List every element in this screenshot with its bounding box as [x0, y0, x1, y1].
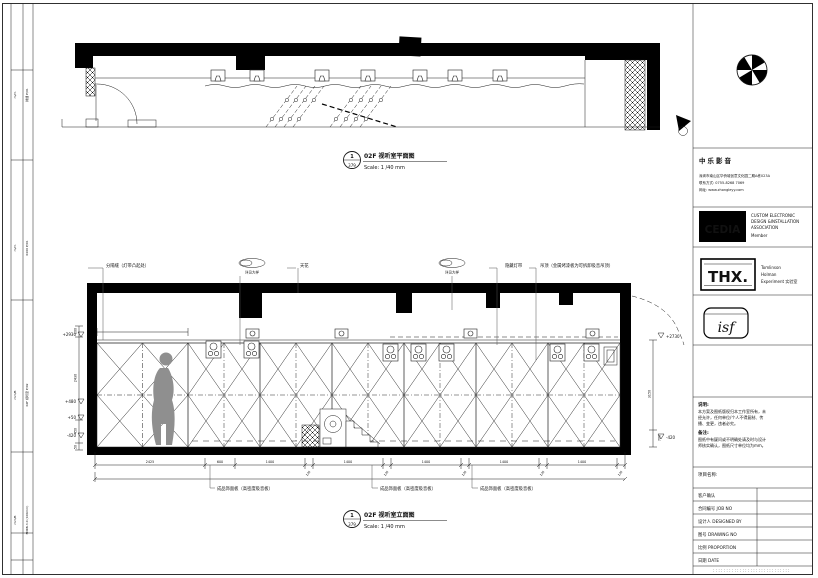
elevation-callouts: 分隔缝（灯带凸起处） 详见大样 天花 详见大样 隐藏灯带 吊顶（金属烤漆板为可拆… [88, 259, 613, 361]
console-and-steps [302, 347, 617, 447]
company-info: 中乐影音 深圳市南山区华侨城创意文化园二期A栋023A 联系方式: 0755-8… [699, 156, 771, 192]
margin-label: 排烟 P/01 [24, 88, 29, 102]
table-row-label: 日期 DATE [698, 558, 719, 564]
detail-number: 1 [350, 513, 354, 519]
callout-label: 成品饰面板（高密度吸音板） [380, 485, 436, 492]
downlight-icon [464, 329, 477, 338]
isf-logo-text: isf [718, 320, 738, 336]
dim-value: 1400 [266, 460, 274, 464]
company-address: 深圳市南山区华侨城创意文化园二期A栋023A [699, 173, 771, 178]
footer-marks: ::::::::::::::::::::::::::::: [713, 569, 791, 573]
notes-line: 经允许，任何单位/个人不得复制、传 [698, 414, 763, 420]
elevation-column [559, 293, 573, 305]
plan-section-line [322, 104, 397, 127]
dim-value: 1400 [344, 460, 352, 464]
isf-block: isf [704, 308, 748, 338]
speaker-icon [383, 344, 398, 361]
plan-cable-runs [266, 86, 391, 127]
remark-line: 师核实确认，图纸尺寸单位均为mm。 [698, 442, 766, 448]
plan-wall-band [75, 43, 660, 56]
cedia-line: DESIGN &INSTALLATION [751, 219, 799, 224]
cedia-line: CUSTOM ELECTRONIC [751, 213, 795, 218]
margin-label: m/m [13, 244, 17, 251]
left-facet-panel [97, 328, 188, 447]
thx-line: Experiment 实验室 [761, 278, 797, 284]
dim-value: 1400 [500, 460, 508, 464]
plan-drawing: 1 379 02F 视听室平面图 Scale: 1 /40 mm [62, 36, 691, 171]
margin-label: 02F 视听室 P/02 [24, 383, 29, 406]
callout-label: 隐藏灯带 [505, 262, 523, 269]
elevation-scale: Scale: 1 /40 mm [364, 524, 405, 530]
door-swing [86, 83, 156, 127]
speaker-icon [550, 344, 565, 361]
plan-column [398, 36, 421, 56]
dim-value: 120 [539, 470, 546, 477]
notes-title: 说明: [698, 401, 709, 408]
plan-title: 02F 视听室平面图 [364, 152, 415, 160]
plan-hatched-pier [86, 68, 95, 96]
plan-title-block: 1 379 02F 视听室平面图 Scale: 1 /40 mm [344, 152, 448, 172]
plan-column [236, 43, 265, 70]
dim-value: 2425 [146, 460, 154, 464]
title-block: 中乐影音 深圳市南山区华侨城创意文化园二期A栋023A 联系方式: 0755-8… [693, 55, 812, 573]
speaker-icon [493, 70, 507, 81]
speaker-icon [361, 70, 375, 81]
notes-line: 本方案及图纸版权归本工作室所有，未 [698, 408, 766, 414]
dim-value: 1400 [578, 460, 586, 464]
cad-canvas: m/m 排烟 P/01 m/m 0400 P/01 mm/B 02F 视听室 P… [0, 0, 818, 578]
speaker-icon [584, 344, 599, 361]
left-margin-labels: m/m 排烟 P/01 m/m 0400 P/01 mm/B 02F 视听室 P… [13, 88, 29, 534]
dim-value: 100 [74, 328, 78, 334]
plan-hatched-column [625, 60, 645, 130]
speaker-icon [244, 341, 259, 358]
speaker-icon [448, 70, 462, 81]
sheet-number: 379 [348, 163, 356, 168]
dim-value: 120 [461, 470, 468, 477]
callout-label: 成品饰面板（高密度吸音板） [480, 485, 536, 492]
detail-number: 1 [350, 154, 354, 160]
notes-line: 播、变更，违者必究。 [698, 420, 738, 426]
thx-line: Tomlinson [760, 265, 781, 270]
company-phone: 联系方式: 0755-8268 7069 [699, 180, 744, 185]
notes-block: 说明: 本方案及图纸版权归本工作室所有，未 经允许，任何单位/个人不得复制、传 … [697, 401, 766, 448]
level-value: -420 [666, 435, 676, 440]
speaker-icon [206, 341, 221, 358]
drawing-sheet: m/m 排烟 P/01 m/m 0400 P/01 mm/B 02F 视听室 P… [0, 0, 818, 578]
sheet-number: 379 [348, 522, 356, 527]
north-arrow-icon [676, 115, 691, 136]
callout-label: 吊顶（金属烤漆板为可拆卸吸音吊顶） [540, 262, 613, 269]
speaker-icon [250, 70, 264, 81]
plan-sketch-line [205, 84, 584, 88]
dim-value: 700 [658, 435, 662, 441]
cedia-block: CEDIA CUSTOM ELECTRONIC DESIGN &INSTALLA… [699, 211, 799, 242]
cedia-logo-text: CEDIA [705, 224, 742, 236]
downlight-icon [246, 329, 259, 338]
speaker-icon [315, 70, 329, 81]
elevation-title-block: 1 379 02F 视听室立面图 Scale: 1 /40 mm [344, 511, 448, 531]
callout-label: 详见大样 [445, 270, 459, 275]
dim-value: 450 [74, 428, 78, 434]
thx-line: Holman [761, 272, 777, 277]
speaker-icon [411, 344, 426, 361]
plan-cable-nodes [270, 98, 382, 120]
elevation-drawing: 分隔缝（灯带凸起处） 详见大样 天花 详见大样 隐藏灯带 吊顶（金属烤漆板为可拆… [62, 259, 684, 531]
remark-title: 备注: [697, 429, 709, 436]
dim-value: 120 [305, 470, 312, 477]
downlight-icon [335, 329, 348, 338]
level-value: +50 [68, 415, 77, 420]
bottom-dimensions: 2425 600 1400 120 1400 120 1400 120 1400… [93, 452, 627, 482]
callout-label: 天花 [300, 262, 309, 269]
speaker-icon [211, 70, 225, 81]
table-row-label: 图号 DRAWING NO [698, 532, 737, 538]
dim-value: 600 [217, 460, 223, 464]
company-logo-icon [737, 55, 767, 85]
cedia-line: ASSOCIATION [751, 225, 778, 230]
margin-label: mm/B [13, 516, 17, 525]
dim-value: 1400 [422, 460, 430, 464]
thx-logo-text: THX. [708, 268, 748, 286]
remark-line: 图纸中有疑问或不明确处请及时与设计 [698, 436, 766, 442]
table-row-label: 合同编号 JOB NO [698, 505, 733, 512]
company-name: 中乐影音 [699, 156, 733, 165]
company-website: 网址: www.zhongleyy.com [699, 187, 744, 192]
dim-value: 120 [617, 470, 624, 477]
project-label: 项目名称: [698, 471, 718, 478]
margin-label: m/m [13, 91, 17, 98]
speaker-icon [413, 70, 427, 81]
elevation-column [396, 293, 412, 313]
margin-label: mm/B [13, 391, 17, 400]
margin-label: 0400 P/01 [25, 240, 29, 255]
callout-label: 成品饰面板（高密度吸音板） [217, 485, 273, 492]
cedia-line: Member [751, 233, 768, 238]
dim-value: 120 [383, 470, 390, 477]
level-value: +480 [65, 399, 76, 404]
callout-label: 详见大样 [245, 270, 259, 275]
level-value: +2730 [666, 334, 680, 339]
thx-block: THX. Tomlinson Holman Experiment 实验室 [701, 259, 797, 290]
right-dimensions: 3150 700 +2730 -420 [648, 333, 680, 447]
elevation-title: 02F 视听室立面图 [364, 511, 415, 519]
dim-value: 2430 [74, 374, 78, 382]
elevation-column [239, 293, 262, 318]
table-row-label: 客户确认 [698, 492, 716, 499]
callout-label: 分隔缝（灯带凸起处） [106, 262, 149, 269]
speaker-icon [439, 344, 454, 361]
bottom-callouts: 成品饰面板（高密度吸音板） 成品饰面板（高密度吸音板） 成品饰面板（高密度吸音板… [210, 465, 536, 492]
table-row-label: 比例 PROPORTION [698, 544, 736, 551]
downlight-icon [586, 329, 599, 338]
plan-scale: Scale: 1 /40 mm [364, 165, 405, 171]
elevation-column [486, 293, 500, 308]
margin-label: FDKB-3.0 (100mm) [25, 506, 29, 535]
table-row-label: 设计人 DESIGNED BY [698, 518, 742, 525]
dim-value: 3150 [648, 390, 652, 398]
elevation-beam [95, 283, 625, 293]
dim-value: 50 [74, 445, 78, 449]
left-dimensions: +2930 +480 +50 -420 100 2430 450 50 [62, 326, 84, 450]
